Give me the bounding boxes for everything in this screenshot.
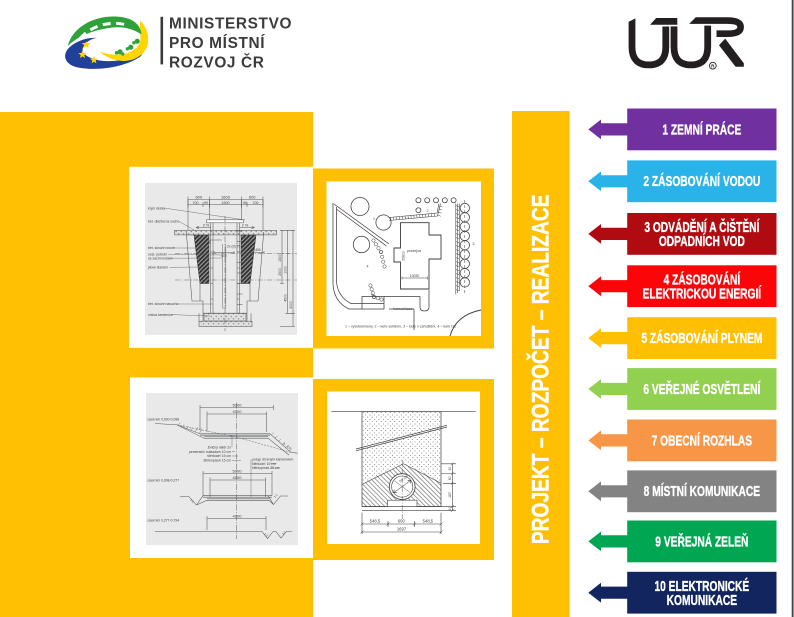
- svg-text:1500: 1500: [222, 201, 230, 205]
- svg-text:ODPADNÍCH VOD: ODPADNÍCH VOD: [659, 232, 745, 249]
- svg-text:4: 4: [367, 265, 369, 269]
- svg-text:1500: 1500: [278, 254, 282, 262]
- svg-text:8 MÍSTNÍ KOMUNIKACE: 8 MÍSTNÍ KOMUNIKACE: [644, 482, 760, 499]
- svg-text:1: 1: [373, 217, 375, 221]
- svg-text:4000: 4000: [233, 514, 243, 519]
- svg-text:2x (d) 75 t: 2x (d) 75 t: [227, 245, 242, 249]
- svg-text:548,5: 548,5: [370, 519, 381, 524]
- svg-text:600: 600: [221, 254, 227, 258]
- svg-text:548,5: 548,5: [423, 519, 434, 524]
- svg-text:30: 30: [448, 467, 452, 471]
- svg-text:2 ZÁSOBOVÁNÍ VODOU: 2 ZÁSOBOVÁNÍ VODOU: [643, 172, 760, 189]
- svg-text:600: 600: [195, 195, 202, 200]
- svg-text:MINISTERSTVO: MINISTERSTVO: [169, 16, 292, 33]
- svg-text:1697: 1697: [397, 527, 407, 532]
- svg-text:5000: 5000: [233, 469, 243, 474]
- svg-text:25800: 25800: [402, 251, 406, 261]
- svg-text:KOMUNIKACE: KOMUNIKACE: [667, 592, 737, 608]
- svg-text:7 OBECNÍ ROZHLAS: 7 OBECNÍ ROZHLAS: [652, 431, 752, 448]
- svg-text:se sacím košem: se sacím košem: [148, 256, 173, 260]
- svg-text:90: 90: [204, 201, 208, 205]
- svg-text:5 ZÁSOBOVÁNÍ PLYNEM: 5 ZÁSOBOVÁNÍ PLYNEM: [641, 329, 762, 346]
- svg-text:R: R: [711, 64, 715, 69]
- svg-text:5000: 5000: [233, 403, 243, 408]
- svg-text:1600: 1600: [221, 195, 231, 200]
- svg-text:úsek km 0,000-0,098: úsek km 0,000-0,098: [148, 418, 180, 422]
- svg-text:jílové těsnění: jílové těsnění: [147, 266, 168, 270]
- svg-text:komunikace: komunikace: [393, 307, 412, 311]
- svg-text:90: 90: [243, 201, 247, 205]
- svg-text:450: 450: [255, 248, 261, 252]
- svg-text:ROZVOJ ČR: ROZVOJ ČR: [169, 54, 265, 72]
- svg-text:bet. dlažba na sucho: bet. dlažba na sucho: [148, 220, 179, 224]
- svg-text:PROJEKT – ROZPOČET – REALIZACE: PROJEKT – ROZPOČET – REALIZACE: [526, 194, 554, 544]
- svg-text:80: 80: [448, 476, 452, 480]
- svg-text:9 VEŘEJNÁ ZELEŇ: 9 VEŘEJNÁ ZELEŇ: [655, 532, 748, 549]
- svg-text:4: 4: [372, 293, 374, 297]
- svg-text:PRO MÍSTNÍ: PRO MÍSTNÍ: [169, 35, 265, 52]
- svg-text:úsek km 0,277-0,794: úsek km 0,277-0,794: [148, 519, 180, 523]
- svg-text:187: 187: [448, 492, 452, 498]
- svg-text:štěrkopísek 15 cm: štěrkopísek 15 cm: [203, 458, 231, 462]
- svg-text:600: 600: [398, 519, 406, 524]
- svg-text:2 %: 2 %: [242, 223, 249, 227]
- svg-text:2 %: 2 %: [203, 223, 210, 227]
- svg-text:3: 3: [473, 242, 475, 246]
- svg-text:700: 700: [193, 201, 199, 205]
- svg-text:bet. skruže nasucho: bet. skruže nasucho: [148, 302, 178, 306]
- svg-text:4000: 4000: [233, 409, 243, 414]
- svg-text:úsek km 0,098-0,277: úsek km 0,098-0,277: [148, 479, 180, 483]
- svg-text:1000: 1000: [284, 266, 288, 274]
- svg-text:prodejna: prodejna: [407, 249, 421, 253]
- svg-text:600: 600: [249, 195, 256, 200]
- svg-text:6 VEŘEJNÉ OSVĚTLENÍ: 6 VEŘEJNÉ OSVĚTLENÍ: [643, 380, 760, 397]
- svg-text:ELEKTRICKOU ENERGIÍ: ELEKTRICKOU ENERGIÍ: [643, 285, 762, 302]
- svg-text:700: 700: [253, 201, 259, 205]
- svg-text:4500: 4500: [284, 294, 288, 302]
- svg-text:13050: 13050: [410, 274, 420, 278]
- svg-text:krycí deska: krycí deska: [148, 206, 165, 210]
- svg-text:1 – vysokokmeny, 2 – keře soli: 1 – vysokokmeny, 2 – keře solitérní, 3 –…: [345, 325, 456, 329]
- svg-text:2500: 2500: [278, 268, 282, 276]
- svg-text:4000: 4000: [233, 475, 243, 480]
- svg-text:vrstva kameniva: vrstva kameniva: [148, 313, 173, 317]
- svg-text:bet. skruže nosné: bet. skruže nosné: [148, 246, 175, 250]
- svg-text:3000: 3000: [289, 301, 293, 309]
- svg-text:1 ZEMNÍ PRÁCE: 1 ZEMNÍ PRÁCE: [662, 120, 741, 137]
- svg-text:2: 2: [427, 209, 429, 213]
